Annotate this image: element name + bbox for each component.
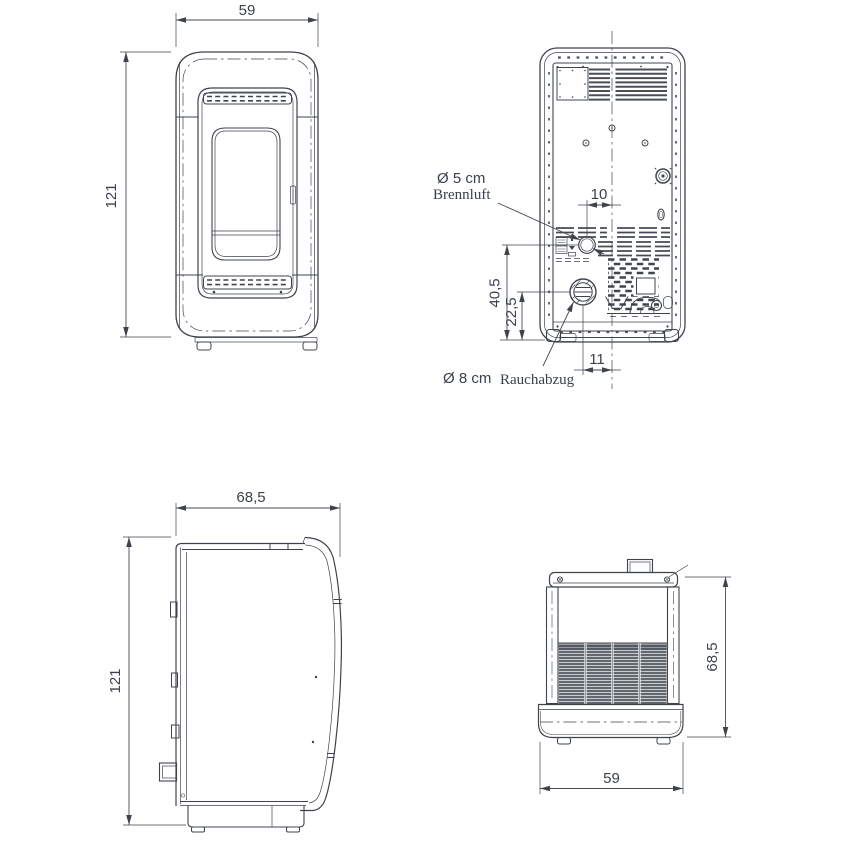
door-frame-inner bbox=[202, 92, 293, 294]
air-inlet-port bbox=[579, 237, 596, 254]
side-back-and-top-edge bbox=[176, 544, 305, 807]
side-view: 68,5 121 bbox=[107, 489, 342, 832]
front-view: 59 121 bbox=[103, 2, 318, 350]
technical-drawing-sheet: 59 121 bbox=[0, 0, 850, 850]
door-screw-left bbox=[213, 291, 216, 294]
front-width-dimension: 59 bbox=[239, 2, 256, 19]
air-inlet-height-dimension: 40,5 bbox=[487, 278, 504, 307]
flue-outlet-leader bbox=[543, 302, 574, 366]
back-perforated-grille bbox=[608, 260, 659, 310]
back-top-vent-slats bbox=[589, 70, 667, 100]
top-depth-extension-lines bbox=[669, 565, 731, 737]
door-frame-outer bbox=[198, 88, 297, 298]
front-side-panel-lines bbox=[180, 62, 315, 328]
side-depth-extension-lines bbox=[176, 503, 340, 557]
front-base-and-feet bbox=[195, 338, 317, 351]
stove-dimension-drawing: 59 121 bbox=[0, 0, 850, 850]
side-rear-fittings bbox=[171, 602, 185, 797]
back-outer-frame bbox=[540, 48, 685, 342]
thermostat-knob bbox=[655, 168, 672, 185]
top-width-dimension: 59 bbox=[603, 770, 620, 787]
back-feet bbox=[547, 330, 679, 342]
air-inlet-name-label: Brennluft bbox=[433, 187, 491, 203]
rating-labels bbox=[556, 238, 576, 257]
top-lid bbox=[558, 587, 668, 643]
side-front-curved-panel bbox=[300, 538, 342, 811]
flue-outlet-port bbox=[570, 279, 596, 305]
top-view: 68,5 59 bbox=[539, 560, 732, 795]
air-inlet-diameter-label: Ø 5 cm bbox=[437, 170, 485, 187]
air-inlet-offset-dimension: 10 bbox=[591, 186, 608, 203]
side-depth-dimension: 68,5 bbox=[236, 489, 265, 506]
flue-outlet-diameter-label: Ø 8 cm bbox=[443, 370, 491, 387]
side-flue-stub bbox=[160, 763, 177, 781]
side-back-panel-lines bbox=[181, 548, 187, 805]
chimney-stub bbox=[628, 560, 653, 573]
air-inlet-leader bbox=[498, 203, 580, 240]
side-top-band bbox=[182, 544, 303, 550]
front-height-dimension: 121 bbox=[103, 183, 120, 208]
top-depth-dimension: 68,5 bbox=[704, 642, 721, 671]
side-height-dimension: 121 bbox=[107, 668, 124, 693]
back-access-panel bbox=[557, 68, 588, 101]
top-front-band bbox=[539, 705, 684, 738]
top-back-band bbox=[550, 573, 678, 588]
front-top-vent-grille bbox=[204, 93, 292, 104]
cable-grommet bbox=[658, 209, 664, 220]
back-screws bbox=[583, 125, 648, 146]
flue-outlet-name-label: Rauchabzug bbox=[500, 372, 575, 388]
front-height-extension-lines bbox=[120, 52, 171, 337]
front-bottom-vent-grille bbox=[204, 276, 292, 289]
top-feet bbox=[558, 738, 671, 745]
back-view: 10 40,5 22,5 bbox=[433, 31, 685, 389]
door-screw-right bbox=[280, 291, 283, 294]
flue-outlet-height-dimension: 22,5 bbox=[503, 297, 520, 326]
side-base-and-feet bbox=[180, 802, 308, 833]
front-window bbox=[212, 128, 280, 260]
top-grille bbox=[558, 643, 668, 705]
flue-outlet-offset-dimension: 11 bbox=[589, 351, 605, 368]
